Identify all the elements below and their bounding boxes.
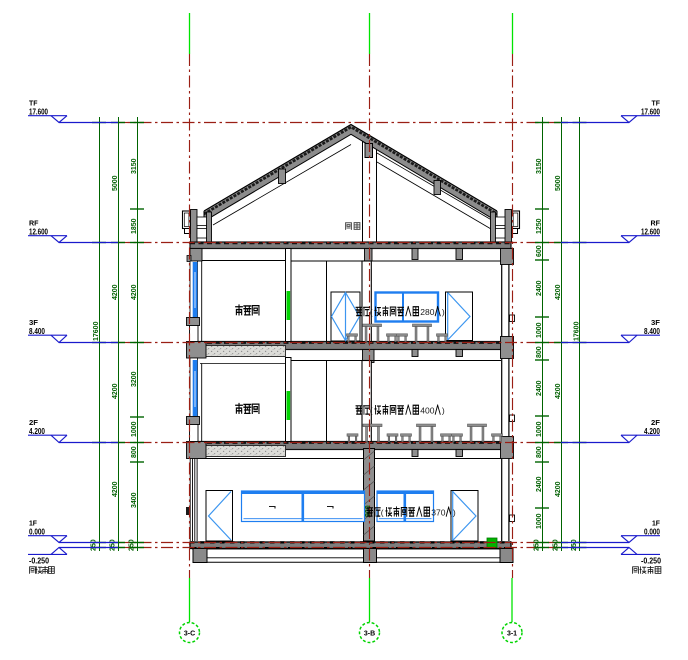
svg-text:TF: TF: [652, 99, 661, 108]
svg-text:2F: 2F: [651, 418, 660, 427]
svg-text:4.200: 4.200: [29, 427, 45, 436]
svg-text:17.600: 17.600: [641, 108, 660, 117]
svg-text:(: (: [381, 508, 384, 518]
svg-text:1F: 1F: [652, 519, 660, 528]
svg-text:2400: 2400: [536, 380, 543, 396]
svg-text:800: 800: [536, 446, 543, 458]
svg-text:1000: 1000: [131, 421, 138, 437]
svg-text:3200: 3200: [131, 371, 138, 387]
svg-text:250: 250: [129, 539, 136, 551]
svg-text:8.400: 8.400: [644, 327, 660, 336]
svg-text:(: (: [370, 307, 373, 317]
svg-text:3150: 3150: [131, 158, 138, 174]
svg-text:2F: 2F: [29, 418, 38, 427]
svg-text:4200: 4200: [555, 383, 562, 399]
svg-text:3400: 3400: [131, 492, 138, 508]
svg-text:17600: 17600: [93, 321, 100, 341]
svg-text:2400: 2400: [536, 476, 543, 492]
svg-text:-0.250: -0.250: [29, 557, 49, 566]
svg-text:370: 370: [431, 508, 445, 518]
svg-text:RF: RF: [651, 219, 661, 228]
svg-text:5000: 5000: [112, 175, 119, 191]
svg-text:): ): [442, 307, 445, 317]
svg-text:800: 800: [131, 446, 138, 458]
svg-text:RF: RF: [29, 219, 39, 228]
svg-text:600: 600: [536, 245, 543, 257]
svg-text:5000: 5000: [555, 175, 562, 191]
svg-text:3-B: 3-B: [364, 631, 375, 638]
svg-text:-0.250: -0.250: [641, 557, 661, 566]
svg-text:280: 280: [420, 307, 434, 317]
svg-text:): ): [442, 406, 445, 416]
svg-text:17.600: 17.600: [29, 108, 48, 117]
svg-text:3F: 3F: [29, 318, 38, 327]
svg-text:400: 400: [420, 406, 434, 416]
svg-text:3-C: 3-C: [184, 631, 195, 638]
svg-text:3150: 3150: [536, 158, 543, 174]
svg-text:1000: 1000: [536, 421, 543, 437]
svg-text:250: 250: [553, 539, 560, 551]
svg-text:3-1: 3-1: [507, 631, 517, 638]
svg-text:1850: 1850: [131, 218, 138, 234]
svg-text:4200: 4200: [112, 383, 119, 399]
svg-text:4200: 4200: [555, 481, 562, 497]
svg-text:): ): [453, 508, 456, 518]
svg-text:4200: 4200: [112, 481, 119, 497]
svg-text:2400: 2400: [536, 280, 543, 296]
svg-text:250: 250: [91, 539, 98, 551]
svg-text:1000: 1000: [536, 322, 543, 338]
svg-text:250: 250: [110, 539, 117, 551]
svg-text:0.000: 0.000: [29, 528, 45, 537]
svg-text:0.000: 0.000: [644, 528, 660, 537]
svg-text:(: (: [370, 406, 373, 416]
svg-text:12.600: 12.600: [641, 228, 660, 237]
svg-text:4.200: 4.200: [644, 427, 660, 436]
svg-text:1F: 1F: [29, 519, 37, 528]
svg-text:4200: 4200: [555, 284, 562, 300]
svg-text:250: 250: [571, 539, 578, 551]
svg-text:4200: 4200: [131, 284, 138, 300]
svg-text:250: 250: [534, 539, 541, 551]
svg-text:8.400: 8.400: [29, 327, 45, 336]
svg-text:800: 800: [536, 346, 543, 358]
svg-text:17600: 17600: [574, 321, 581, 341]
svg-text:1250: 1250: [536, 218, 543, 234]
svg-text:1000: 1000: [536, 513, 543, 529]
svg-text:4200: 4200: [112, 284, 119, 300]
svg-text:3F: 3F: [651, 318, 660, 327]
svg-text:12.600: 12.600: [29, 228, 48, 237]
svg-text:TF: TF: [29, 99, 38, 108]
